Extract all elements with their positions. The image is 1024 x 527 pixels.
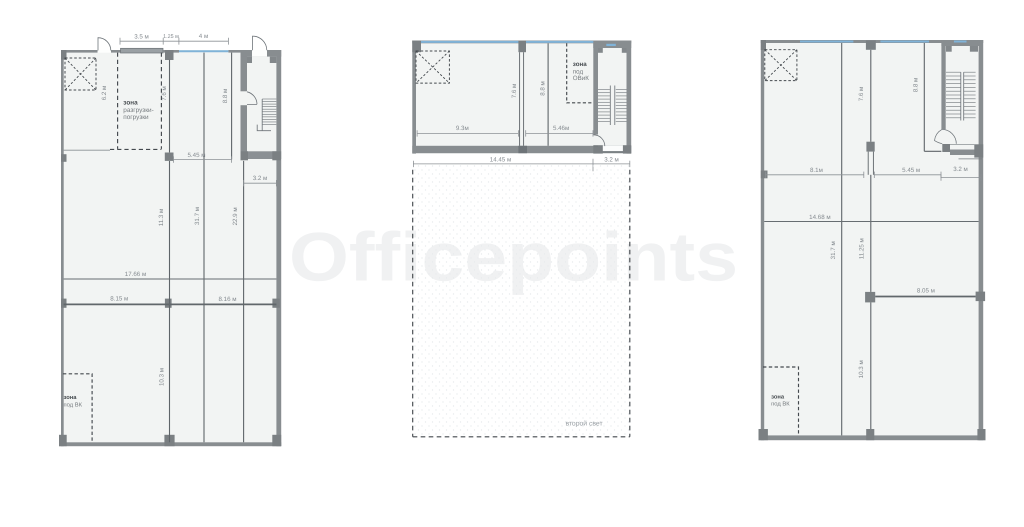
svg-text:1.25 м: 1.25 м: [163, 34, 179, 40]
svg-text:17.66 м: 17.66 м: [125, 271, 146, 278]
svg-text:разгрузки-: разгрузки-: [123, 107, 153, 114]
svg-text:8.05 м: 8.05 м: [917, 287, 935, 294]
svg-text:зона: зона: [64, 395, 78, 401]
svg-text:8.8 м: 8.8 м: [913, 78, 920, 93]
svg-text:9.3м: 9.3м: [456, 125, 469, 132]
svg-text:11.3 м: 11.3 м: [158, 209, 165, 227]
svg-text:7.6 м: 7.6 м: [511, 84, 518, 99]
svg-text:7.6 м: 7.6 м: [858, 87, 865, 102]
svg-text:ОВиК: ОВиК: [573, 75, 589, 82]
svg-text:4 м: 4 м: [199, 33, 208, 40]
svg-text:под ВК: под ВК: [771, 401, 790, 407]
svg-text:11.25 м: 11.25 м: [858, 238, 865, 259]
svg-text:7.6 м: 7.6 м: [161, 86, 168, 101]
svg-text:14.45 м: 14.45 м: [490, 156, 511, 163]
svg-text:3.2 м: 3.2 м: [953, 166, 968, 173]
svg-text:3.2 м: 3.2 м: [253, 175, 268, 182]
svg-text:5.45 м: 5.45 м: [187, 152, 205, 159]
svg-text:под ВК: под ВК: [64, 402, 83, 408]
svg-text:31.7 м: 31.7 м: [830, 241, 837, 259]
svg-text:8.15 м: 8.15 м: [110, 296, 128, 303]
svg-text:5.45 м: 5.45 м: [902, 167, 920, 174]
svg-text:10.3 м: 10.3 м: [858, 360, 865, 378]
svg-text:второй свет: второй свет: [565, 419, 602, 427]
svg-text:зона: зона: [123, 100, 138, 107]
svg-text:3.2 м: 3.2 м: [604, 156, 619, 163]
svg-text:8.16 м: 8.16 м: [218, 296, 236, 303]
svg-text:8.8 м: 8.8 м: [222, 89, 229, 104]
svg-text:31.7 м: 31.7 м: [194, 207, 201, 225]
svg-text:погрузки: погрузки: [123, 114, 149, 121]
svg-text:14.68 м: 14.68 м: [809, 214, 830, 221]
svg-text:10.3 м: 10.3 м: [159, 368, 166, 386]
svg-text:3.5 м: 3.5 м: [134, 34, 149, 41]
svg-text:22.9 м: 22.9 м: [232, 207, 239, 225]
svg-text:6.2 м: 6.2 м: [101, 86, 108, 101]
svg-text:8.8 м: 8.8 м: [540, 81, 547, 96]
svg-text:8.1м: 8.1м: [810, 167, 823, 174]
svg-text:5.46м: 5.46м: [553, 125, 569, 132]
svg-text:зона: зона: [771, 394, 785, 400]
svg-text:зона: зона: [573, 61, 587, 68]
